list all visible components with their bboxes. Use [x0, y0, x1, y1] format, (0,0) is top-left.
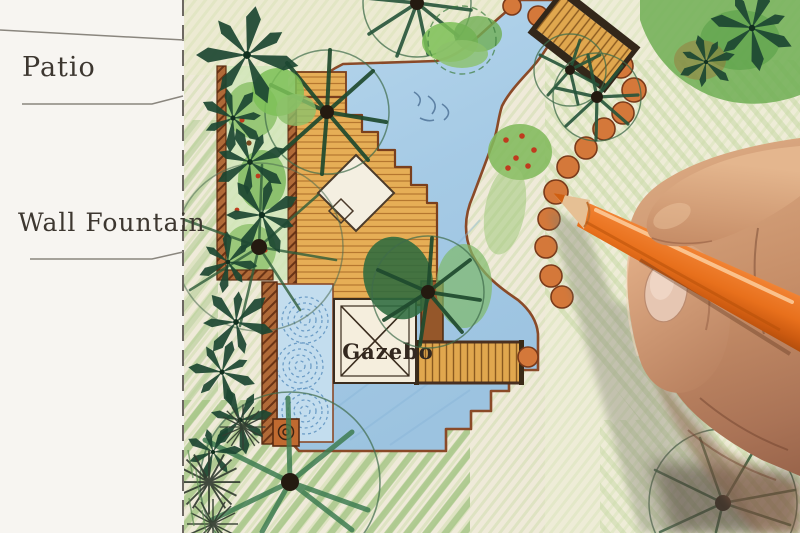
stepping-stone — [551, 286, 573, 308]
stepping-stone — [535, 236, 557, 258]
wall-fountain-label: Wall Fountain — [18, 208, 206, 237]
stepping-stone — [557, 156, 579, 178]
photo-of-landscape-plan: Gazebo — [0, 0, 800, 533]
stepping-stone — [518, 347, 538, 367]
stepping-stone — [503, 0, 521, 15]
patio-label: Patio — [22, 52, 96, 83]
landscape-plan-drawing: Gazebo — [0, 0, 800, 533]
stepping-stone — [540, 265, 562, 287]
stepping-stone — [622, 78, 646, 102]
drain-light-fixture — [273, 419, 299, 446]
